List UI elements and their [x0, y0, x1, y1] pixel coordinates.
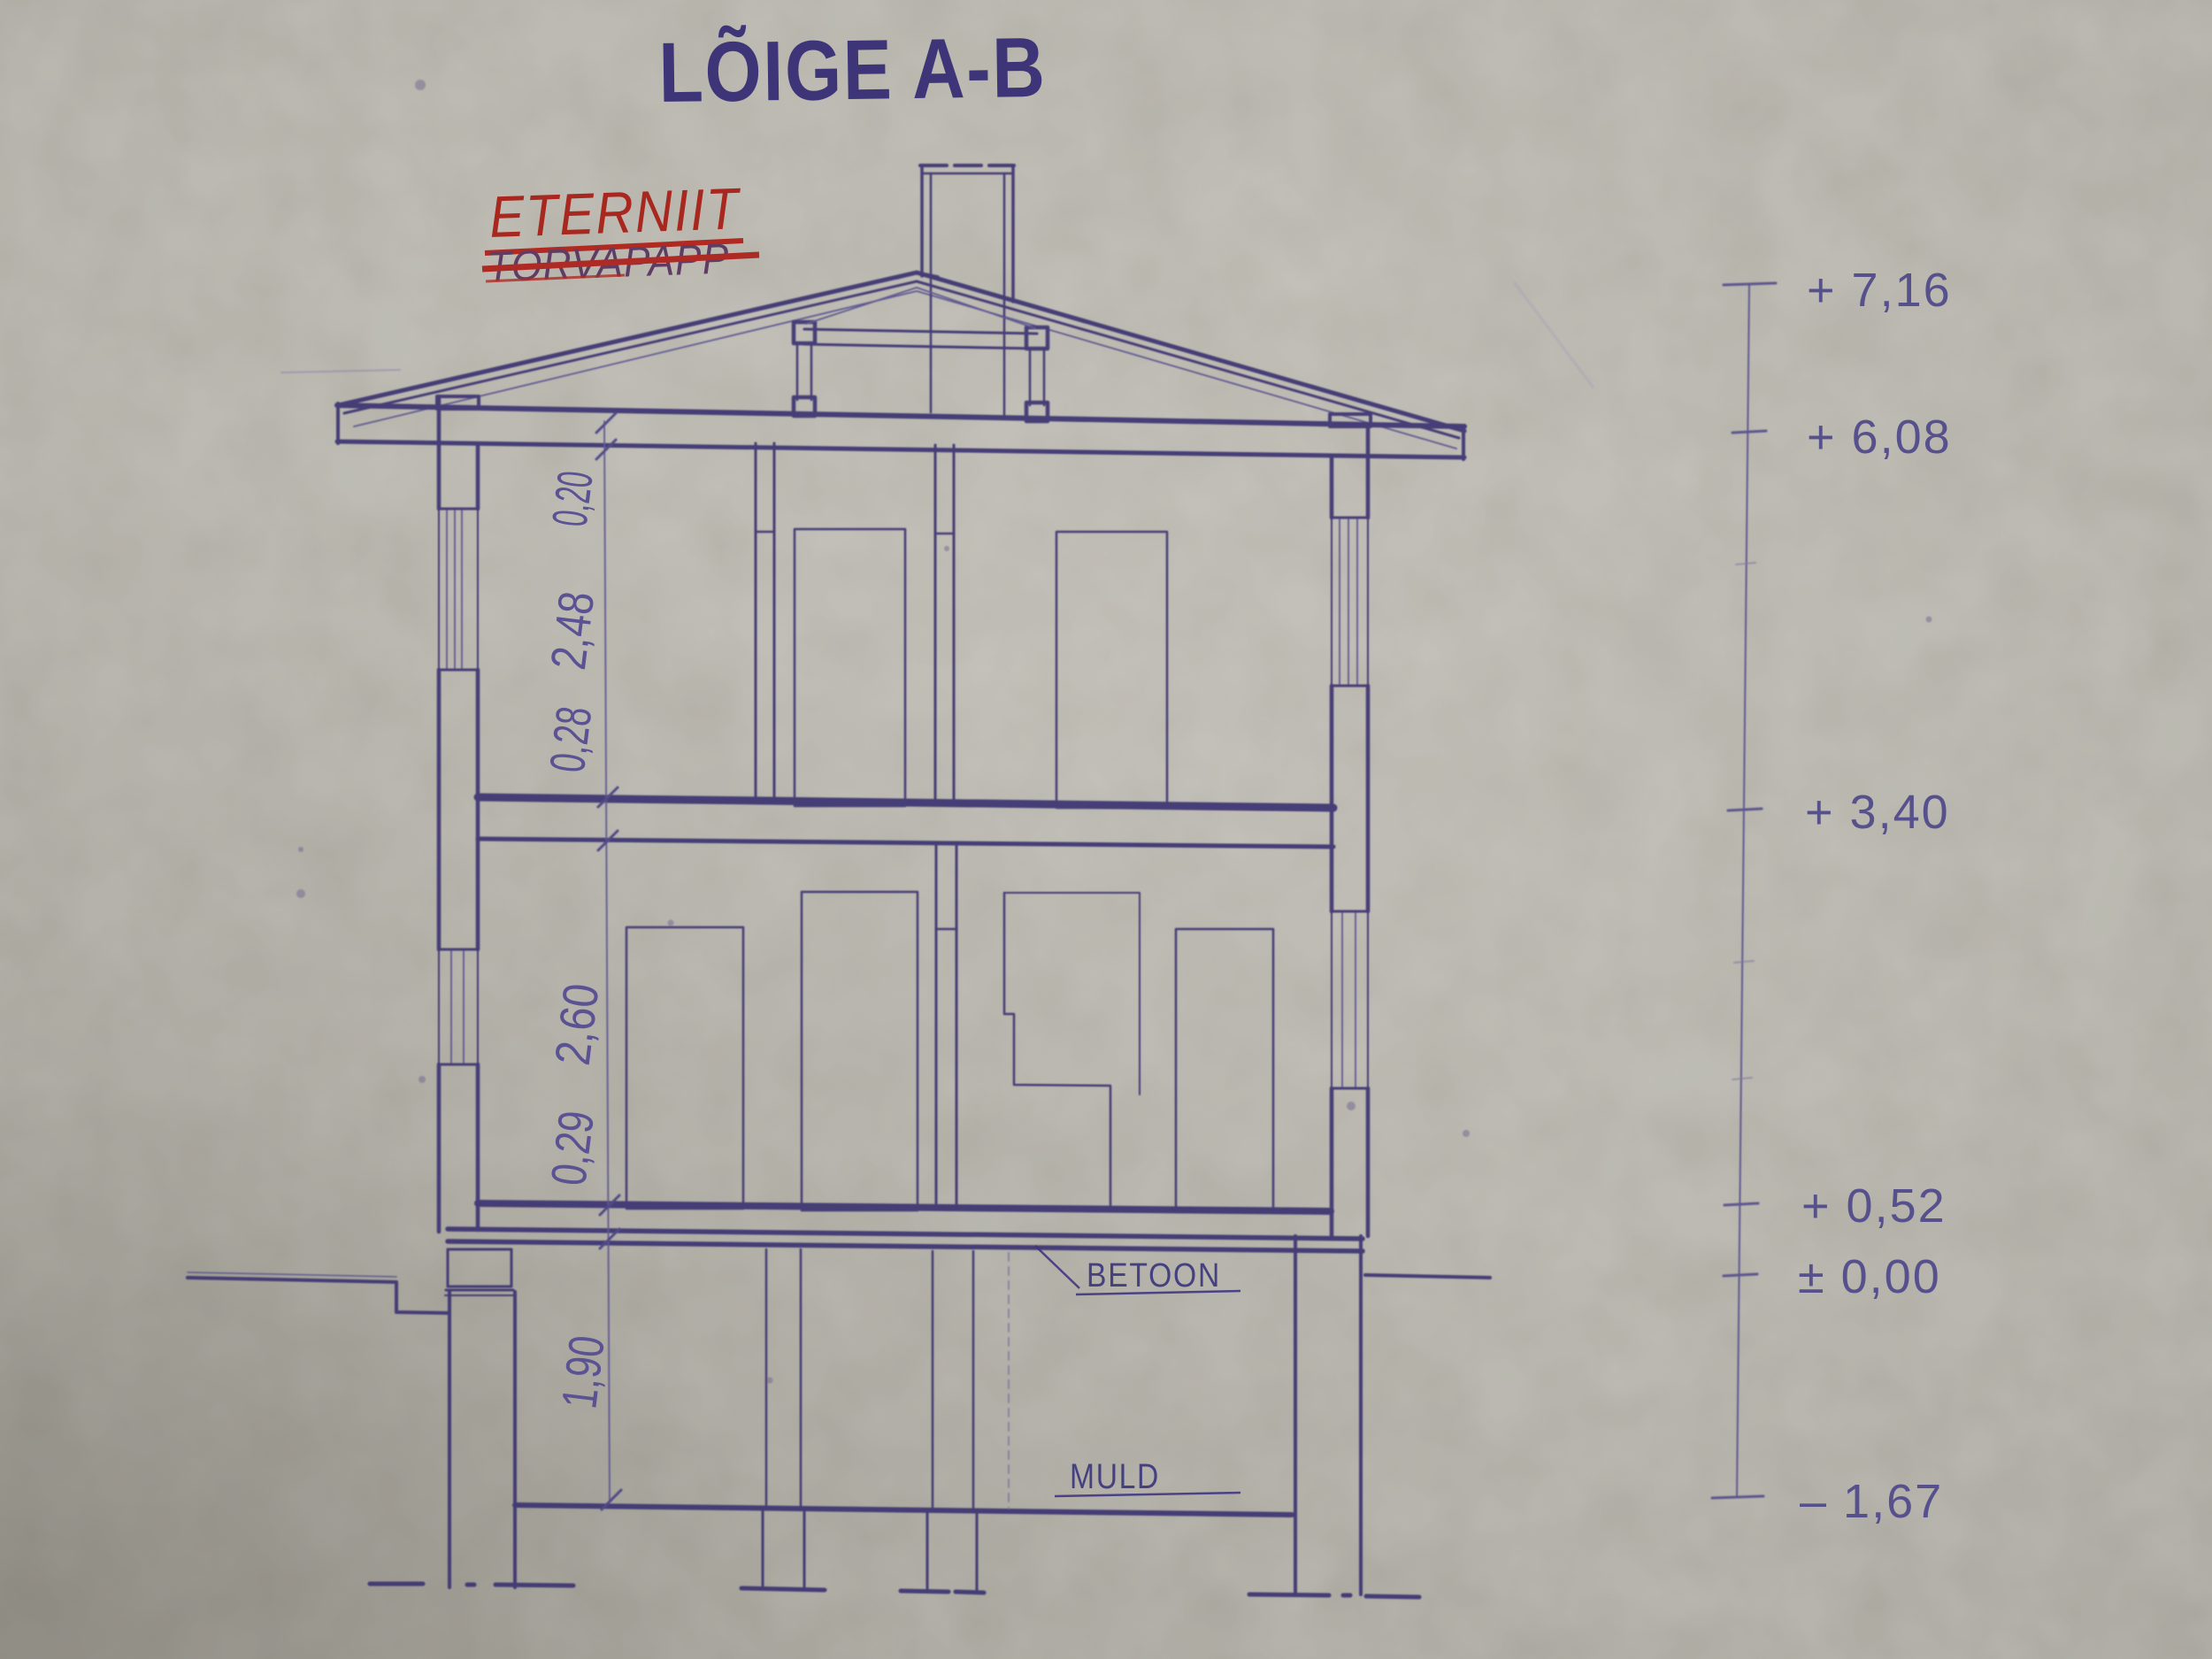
svg-text:– 1,67: – 1,67 — [1800, 1475, 1943, 1528]
svg-text:2,60: 2,60 — [544, 980, 610, 1068]
svg-text:+ 0,52: + 0,52 — [1801, 1179, 1947, 1233]
svg-text:2,48: 2,48 — [540, 588, 604, 672]
svg-text:± 0,00: ± 0,00 — [1798, 1250, 1941, 1303]
svg-text:MULD: MULD — [1070, 1457, 1160, 1496]
svg-text:1,90: 1,90 — [550, 1333, 615, 1411]
svg-text:0,20: 0,20 — [541, 468, 603, 529]
svg-text:+ 7,16: + 7,16 — [1807, 264, 1952, 317]
svg-text:0,28: 0,28 — [539, 703, 603, 775]
svg-text:0,29: 0,29 — [540, 1108, 604, 1188]
svg-text:+ 6,08: + 6,08 — [1807, 411, 1952, 464]
svg-text:LÕIGE A-B: LÕIGE A-B — [658, 20, 1047, 120]
svg-text:BETOON: BETOON — [1087, 1257, 1221, 1294]
svg-text:+ 3,40: + 3,40 — [1805, 786, 1950, 839]
